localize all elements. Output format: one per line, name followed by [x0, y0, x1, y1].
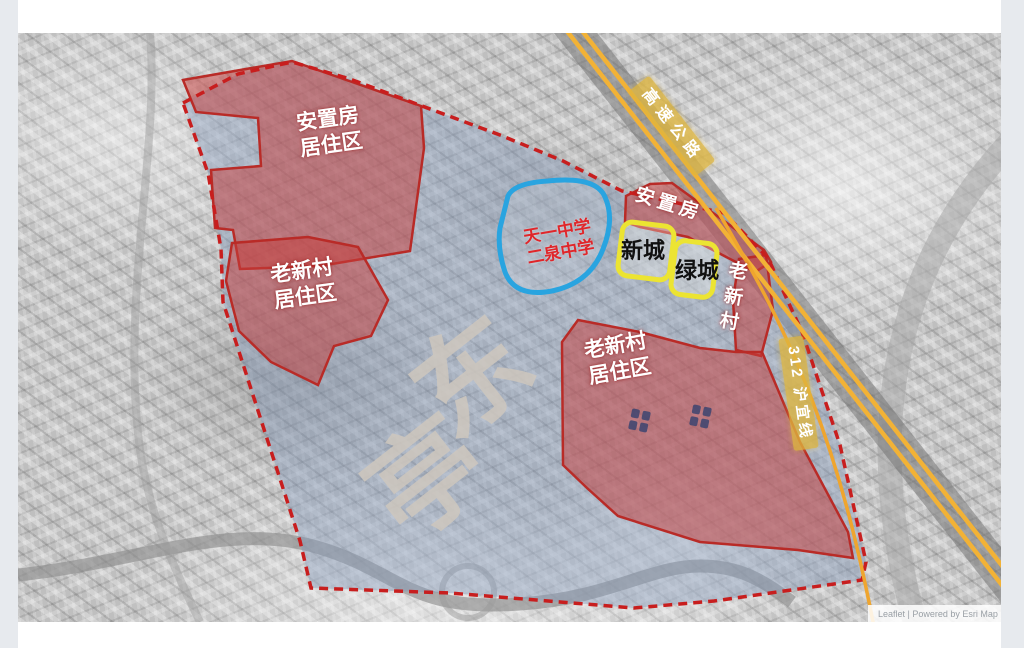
right-margin-strip [1001, 0, 1024, 648]
green-town-label: 绿城 [675, 257, 719, 285]
left-margin-strip [0, 0, 18, 648]
attribution-link[interactable]: Leaflet | Powered by Esri Map [878, 609, 998, 619]
map-annotation-layer [0, 0, 1024, 648]
page-root: 东 亭 安置房 居住区 老新村 居住区 安置房 新城 绿城 老 新 村 老新村 … [0, 0, 1024, 648]
new-town-label: 新城 [621, 237, 665, 265]
